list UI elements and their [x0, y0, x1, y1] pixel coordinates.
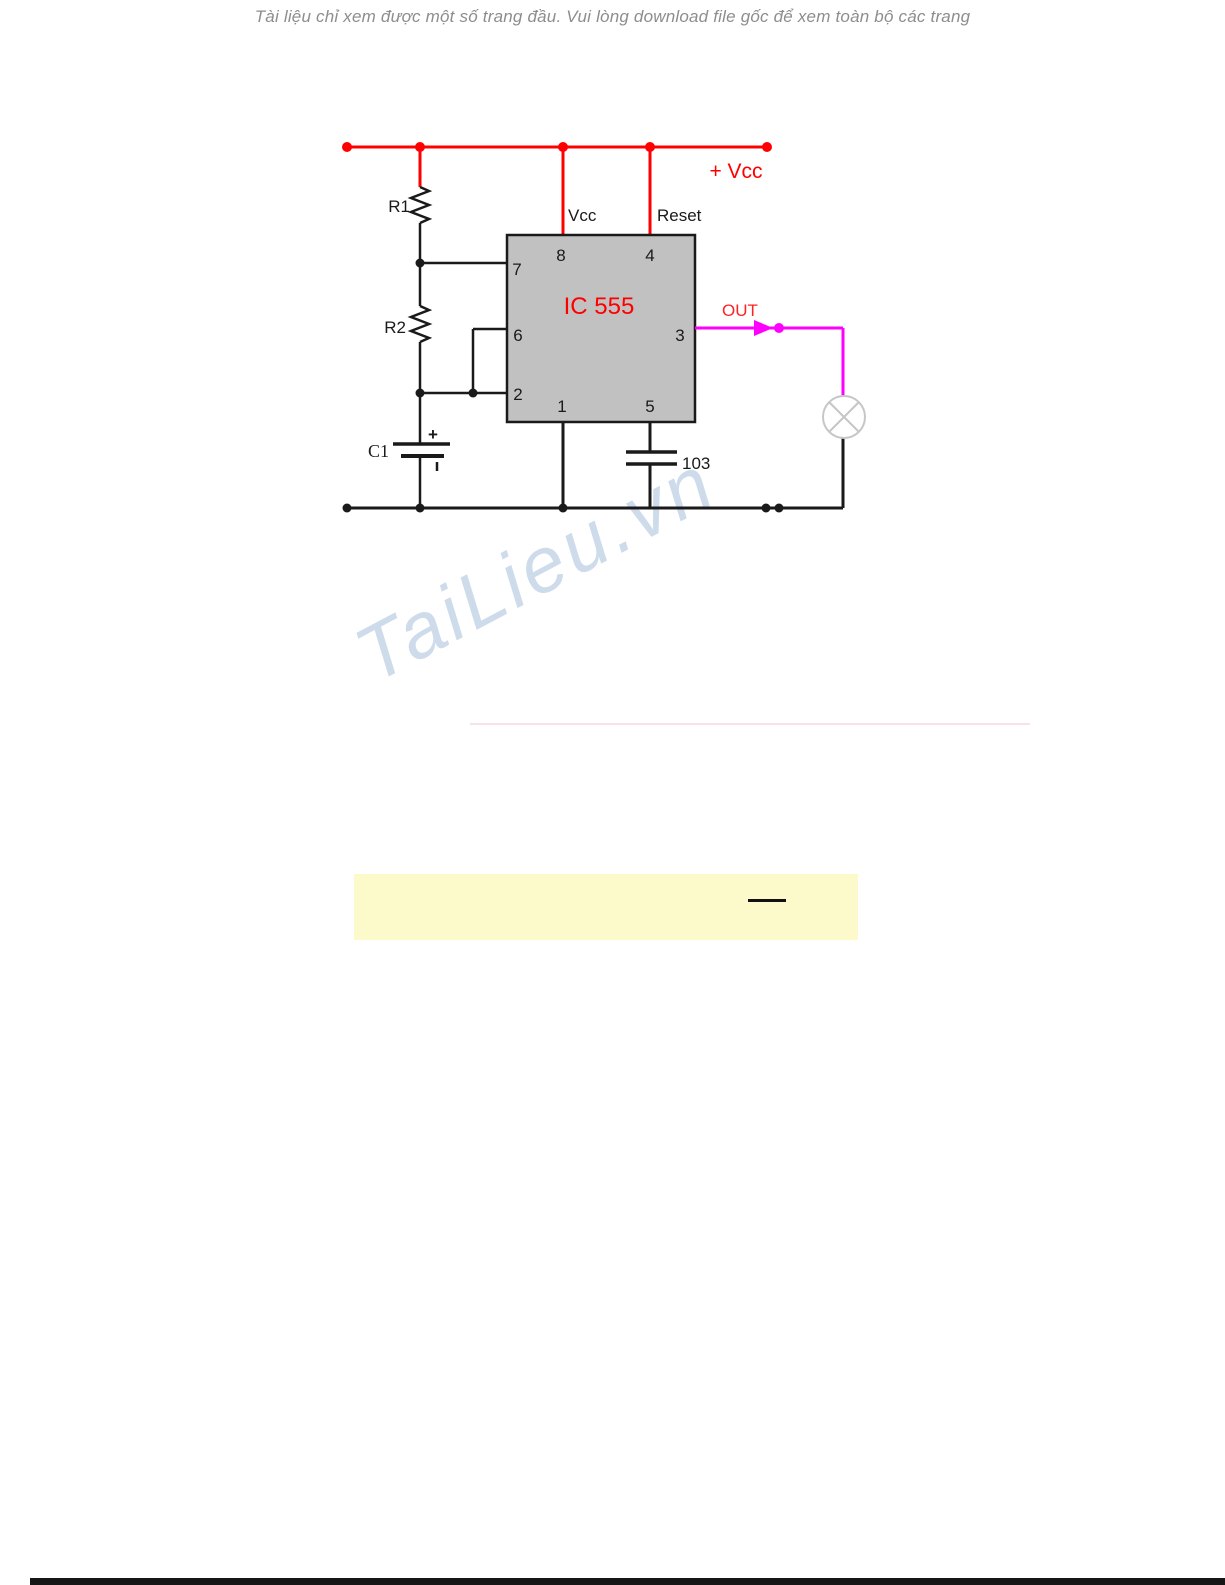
- ic555-body: [507, 235, 695, 422]
- ic555-title: IC 555: [564, 293, 635, 320]
- power-rail-label: + Vcc: [709, 160, 762, 183]
- junction-dot: [342, 142, 352, 152]
- junction-dot: [469, 389, 478, 398]
- ground-section: [347, 422, 843, 508]
- highlight-dash-line: [748, 899, 786, 902]
- next-page-edge: [30, 1578, 1225, 1585]
- pin8-number: 8: [556, 246, 565, 265]
- pin3-number: 3: [675, 326, 684, 345]
- junction-dot: [775, 504, 784, 513]
- out-label: OUT: [722, 301, 758, 320]
- junction-dot: [774, 323, 784, 333]
- resistor-r1-label: R1: [388, 197, 410, 216]
- junction-dot: [416, 389, 425, 398]
- output-wire: [695, 320, 843, 397]
- reset-pin-label: Reset: [657, 206, 702, 225]
- resistor-r2: [411, 306, 429, 342]
- vcc-pin-label: Vcc: [568, 206, 597, 225]
- pin7-number: 7: [512, 260, 521, 279]
- capacitor-c1: [393, 444, 450, 471]
- lamp-symbol: [823, 396, 865, 438]
- junction-dot: [416, 259, 425, 268]
- out-arrowhead: [754, 320, 773, 336]
- circuit-diagram: + Vcc R1 R2 C1 + IC 555 8 4 7 6 2 3 1 5 …: [0, 0, 1225, 1585]
- pin1-number: 1: [557, 397, 566, 416]
- junction-dot: [762, 504, 771, 513]
- capacitor-c1-label: C1: [368, 441, 389, 461]
- resistor-r2-label: R2: [384, 318, 406, 337]
- highlighted-text-region: [354, 874, 858, 940]
- c1-plus-sign: +: [428, 425, 438, 444]
- left-branch-wires: [411, 187, 507, 508]
- junction-dot: [415, 142, 425, 152]
- junction-dot: [762, 142, 772, 152]
- junction-dot: [645, 142, 655, 152]
- junction-dot: [416, 504, 425, 513]
- junction-dot: [559, 504, 568, 513]
- pin4-number: 4: [645, 246, 654, 265]
- pin6-number: 6: [513, 326, 522, 345]
- resistor-r1: [411, 187, 429, 223]
- junction-dot: [558, 142, 568, 152]
- vcc-power-rail: [342, 142, 772, 236]
- cap103-label: 103: [682, 454, 710, 473]
- junction-dot: [343, 504, 352, 513]
- pin2-number: 2: [513, 385, 522, 404]
- left-branch-junctions: [416, 259, 478, 398]
- pin5-number: 5: [645, 397, 654, 416]
